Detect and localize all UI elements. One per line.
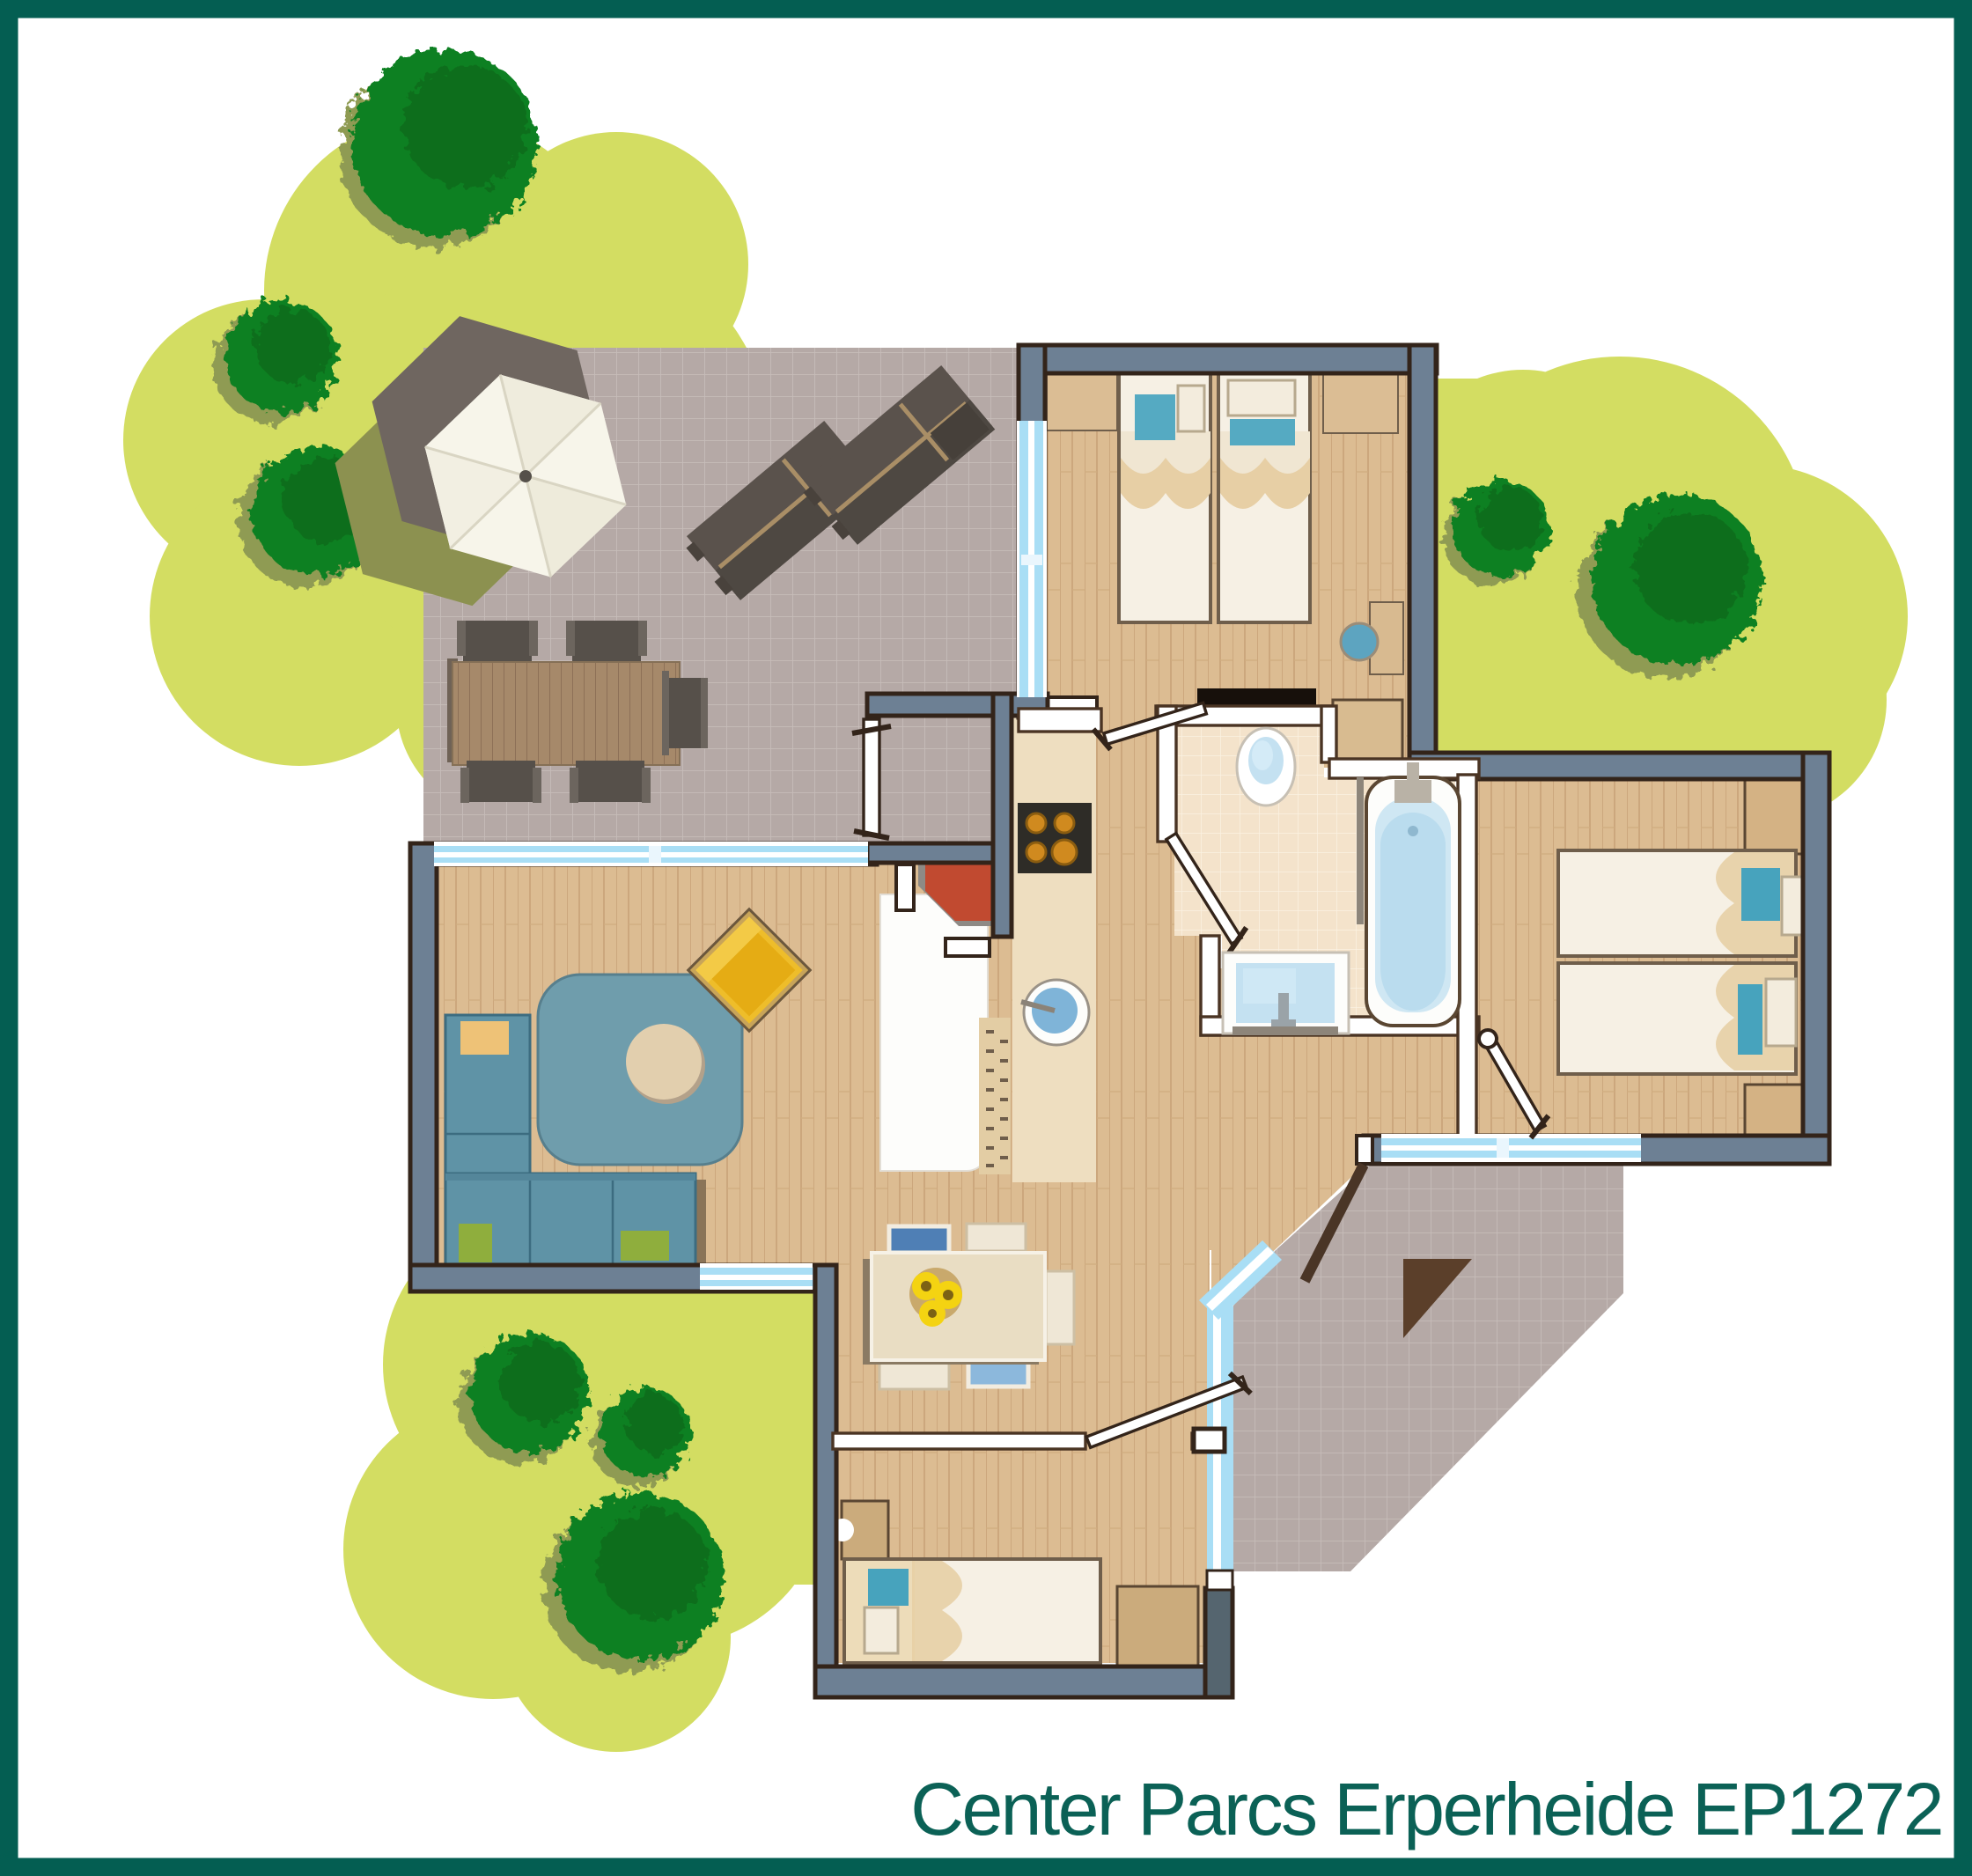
svg-text:Center Parcs Erperheide EP1272: Center Parcs Erperheide EP1272 (910, 1768, 1942, 1850)
